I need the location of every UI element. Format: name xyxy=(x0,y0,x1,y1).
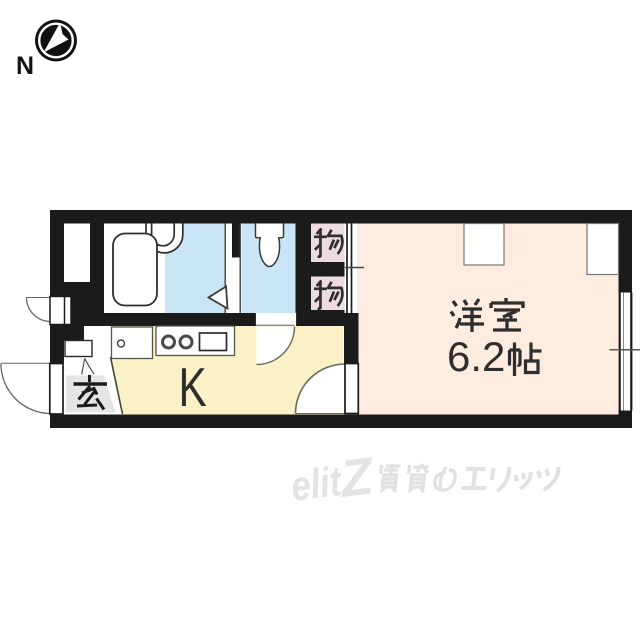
svg-text:K: K xyxy=(179,358,207,419)
svg-text:6.2: 6.2 xyxy=(447,333,505,380)
svg-text:elit: elit xyxy=(288,457,345,510)
svg-text:N: N xyxy=(16,52,34,80)
